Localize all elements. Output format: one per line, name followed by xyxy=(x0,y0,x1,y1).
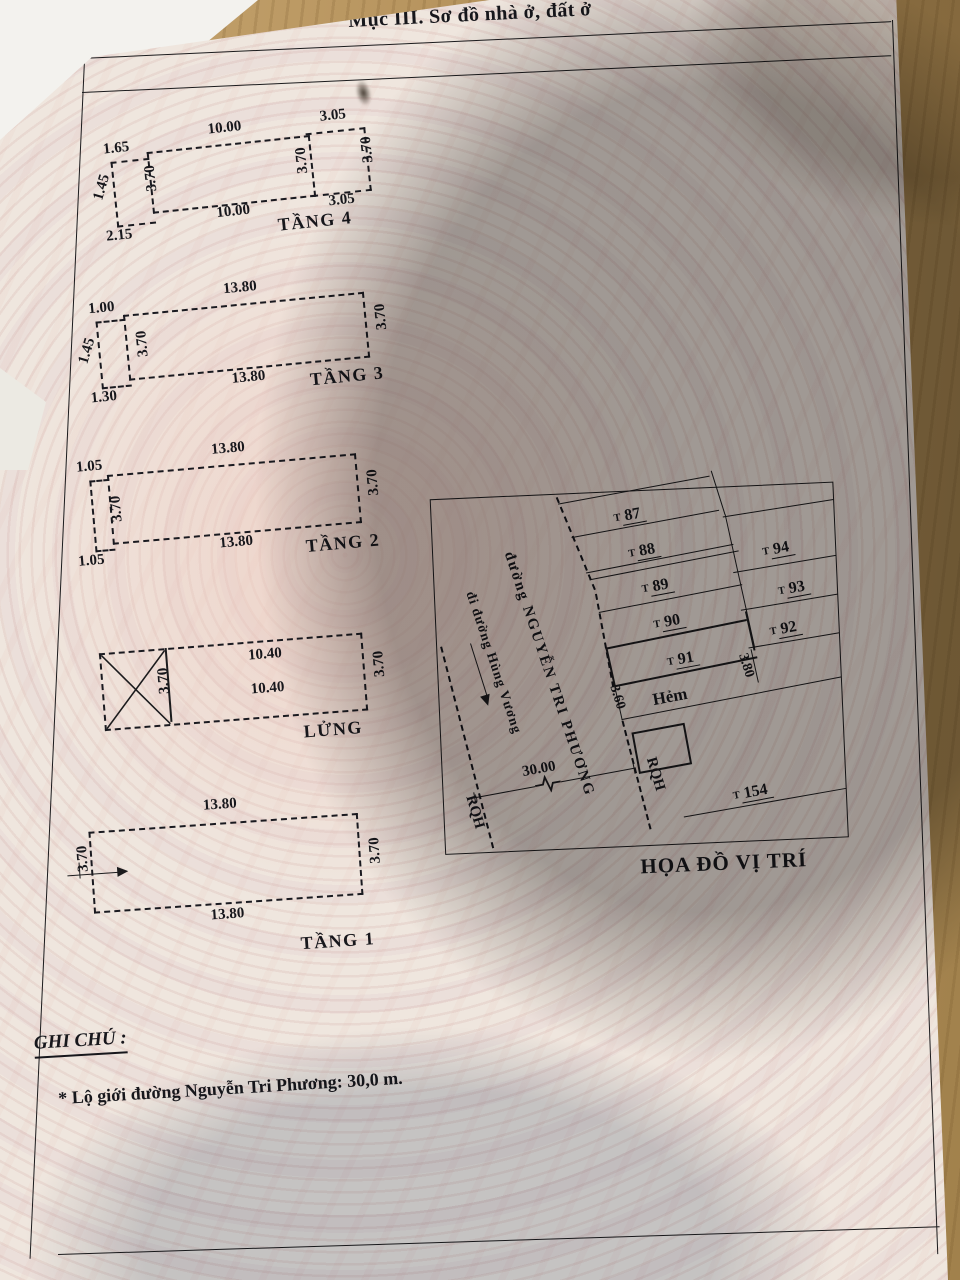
notes-line-1: * Lộ giới đường Nguyễn Tri Phương: 30,0 … xyxy=(58,1068,404,1109)
location-map: đường NGUYỄN TRI PHƯƠNG đi đường Hùng Vư… xyxy=(427,461,865,909)
frame-bottom-line xyxy=(58,1226,940,1255)
tang3-ext-left xyxy=(95,319,131,390)
tang2-ext-left-top: 1.05 xyxy=(75,457,103,476)
tang3-dim-right: 3.70 xyxy=(372,303,391,331)
photo-of-document: Mục III. Sơ đồ nhà ở, đất ở 10.00 10.00 … xyxy=(0,0,960,1280)
tang4-ext-left xyxy=(110,158,156,228)
section-title: Mục III. Sơ đồ nhà ở, đất ở xyxy=(255,0,686,37)
tang3-ext-left-side: 1.45 xyxy=(76,336,100,366)
tang1-entry-arrow xyxy=(117,866,129,877)
header-underline xyxy=(82,55,891,93)
lung-dim-right: 3.70 xyxy=(370,650,389,678)
tang2-dim-right: 3.70 xyxy=(364,469,383,497)
document-page: Mục III. Sơ đồ nhà ở, đất ở 10.00 10.00 … xyxy=(0,0,960,1280)
floorplan-tang3: 13.80 13.80 3.70 3.70 1.00 1.45 1.30 TẦN… xyxy=(78,261,399,420)
tang4-ext-right-side: 3.70 xyxy=(358,136,378,164)
tang1-dim-right: 3.70 xyxy=(366,837,385,864)
tang3-ext-left-bottom: 1.30 xyxy=(90,388,118,407)
floorplan-lung: 3.70 10.40 10.40 3.70 LỬNG xyxy=(85,608,405,767)
tang1-title: TẦNG 1 xyxy=(300,928,376,954)
tang4-ext-left-side: 1.45 xyxy=(90,173,114,203)
frame-right-line xyxy=(892,20,938,1254)
map-title: HỌA ĐỒ VỊ TRÍ xyxy=(583,845,864,882)
tang4-ext-left-bottom: 2.15 xyxy=(105,226,133,246)
tang1-dim-left: 3.70 xyxy=(74,845,93,872)
tang4-ext-right-top: 3.05 xyxy=(303,104,362,127)
floorplan-tang1: 13.80 13.80 3.70 3.70 TẦNG 1 xyxy=(61,785,402,973)
notes-heading: GHI CHÚ : xyxy=(33,1027,127,1058)
tang2-ext-left-bottom: 1.05 xyxy=(78,552,106,571)
tang3-dim-left: 3.70 xyxy=(133,330,152,358)
floorplan-tang2: 13.80 13.80 3.70 3.70 1.05 1.05 TẦNG 2 xyxy=(75,425,396,587)
lung-divider-dim: 3.70 xyxy=(155,667,174,695)
tang1-outline xyxy=(88,813,363,914)
tang4-ext-left-top: 1.65 xyxy=(102,139,130,159)
tang3-ext-left-top: 1.00 xyxy=(88,299,116,318)
floorplan-tang4: 10.00 10.00 3.70 3.70 3.05 3.05 3.70 1.6… xyxy=(89,97,401,263)
frame-left-line xyxy=(30,60,85,1259)
lung-title: LỬNG xyxy=(303,717,364,743)
